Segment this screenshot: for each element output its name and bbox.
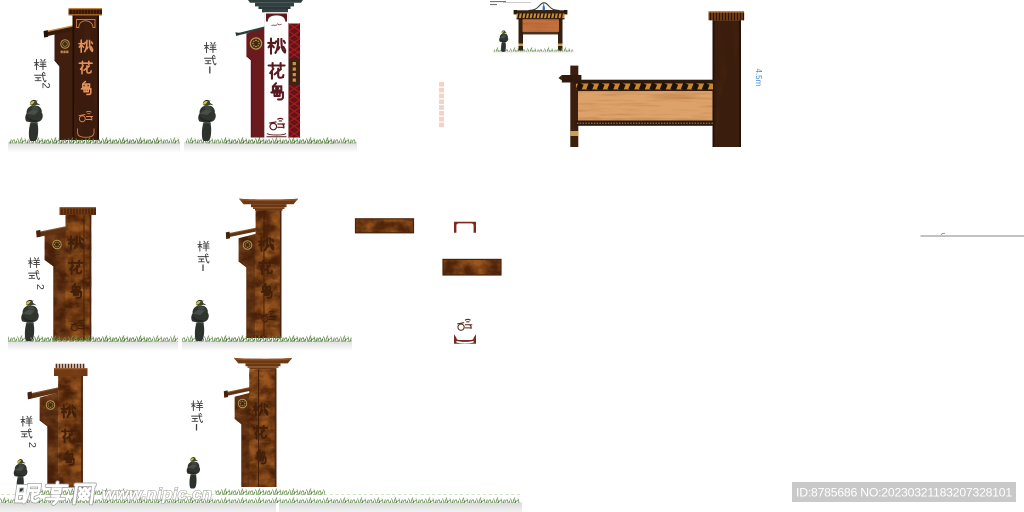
svg-text:ID:8785686 NO:2023032118320732: ID:8785686 NO:20230321183207328101 bbox=[796, 486, 1012, 500]
svg-text:2: 2 bbox=[34, 284, 46, 290]
svg-text:2: 2 bbox=[40, 83, 52, 89]
svg-text:www.nipic.cn: www.nipic.cn bbox=[102, 485, 212, 504]
svg-text:4.5m: 4.5m bbox=[754, 69, 763, 87]
svg-text:2: 2 bbox=[26, 442, 38, 448]
